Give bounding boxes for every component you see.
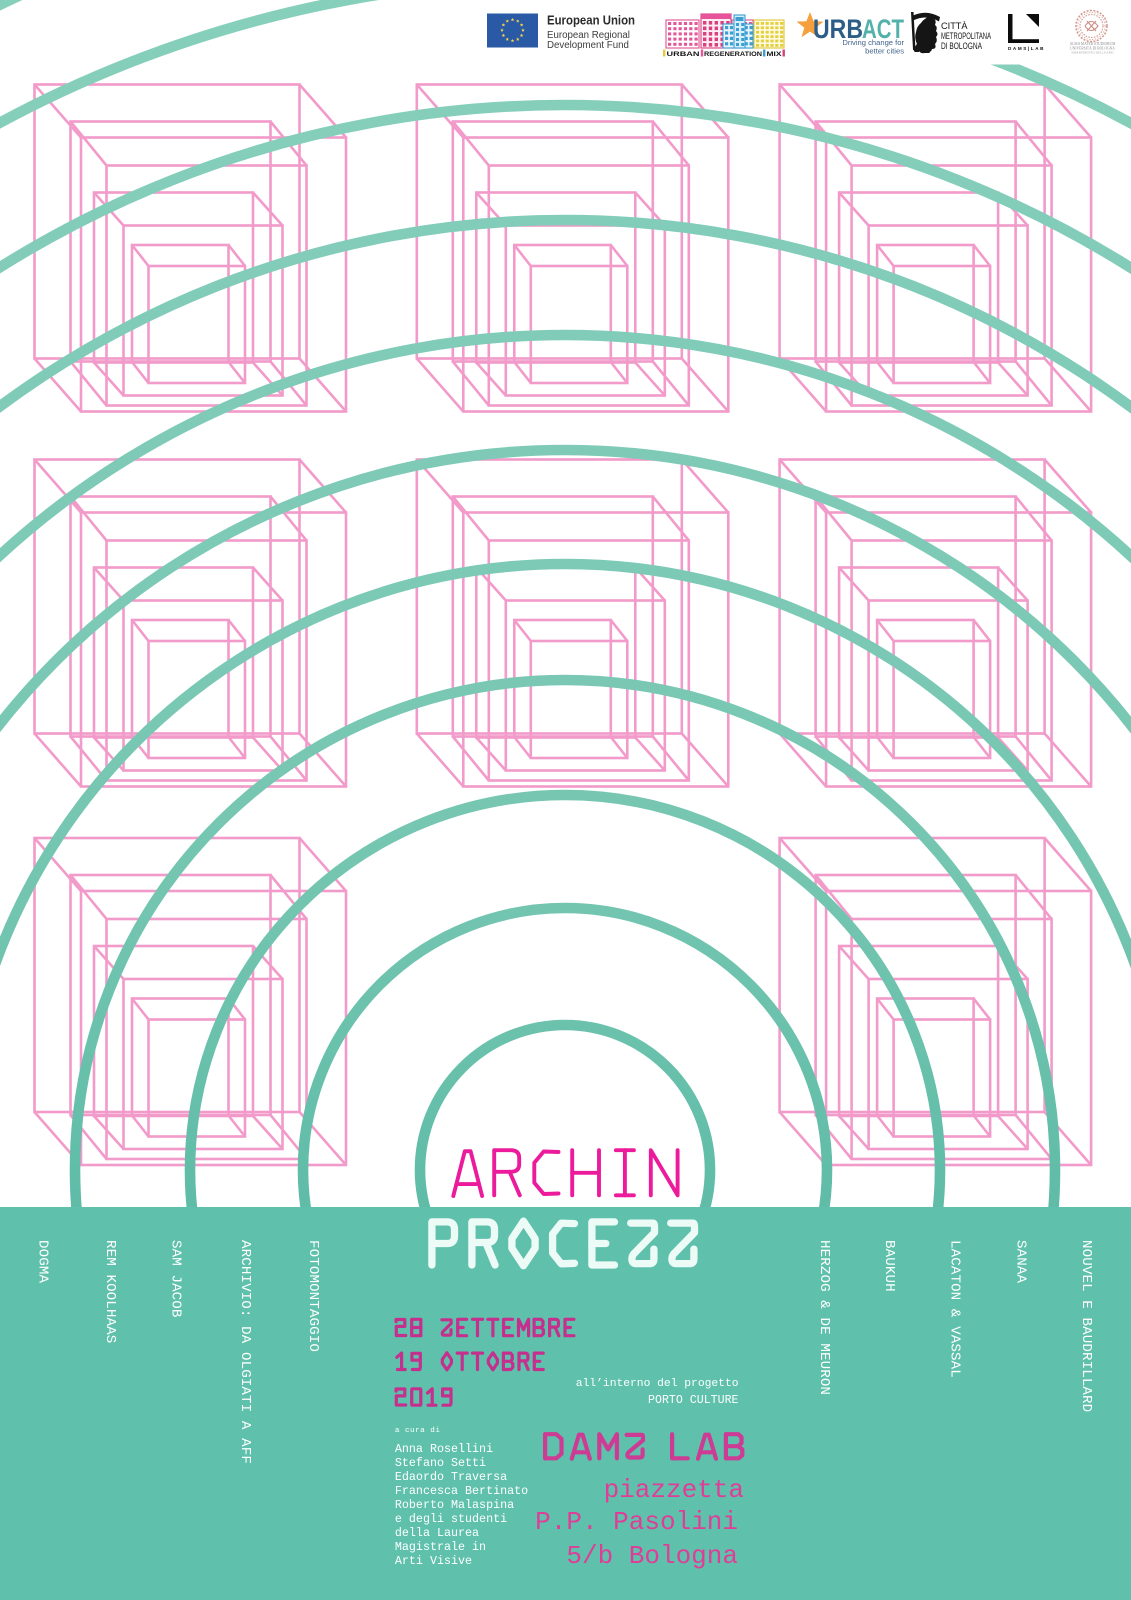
svg-text:DI BOLOGNA: DI BOLOGNA: [941, 41, 983, 51]
svg-text:URBAN: URBAN: [667, 51, 700, 58]
svg-text:CITTÀ: CITTÀ: [941, 21, 968, 31]
svg-text:DIPARTIMENTO DELLE ARTI: DIPARTIMENTO DELLE ARTI: [1071, 50, 1113, 54]
svg-text:REGENERATION: REGENERATION: [704, 51, 762, 58]
svg-text:MIX: MIX: [767, 51, 783, 58]
svg-text:European Union: European Union: [547, 13, 635, 28]
svg-text:Development Fund: Development Fund: [547, 40, 629, 51]
svg-text:better cities: better cities: [865, 47, 904, 56]
svg-text:METROPOLITANA: METROPOLITANA: [941, 31, 992, 41]
svg-text:DAMS|LAB: DAMS|LAB: [1008, 46, 1045, 51]
